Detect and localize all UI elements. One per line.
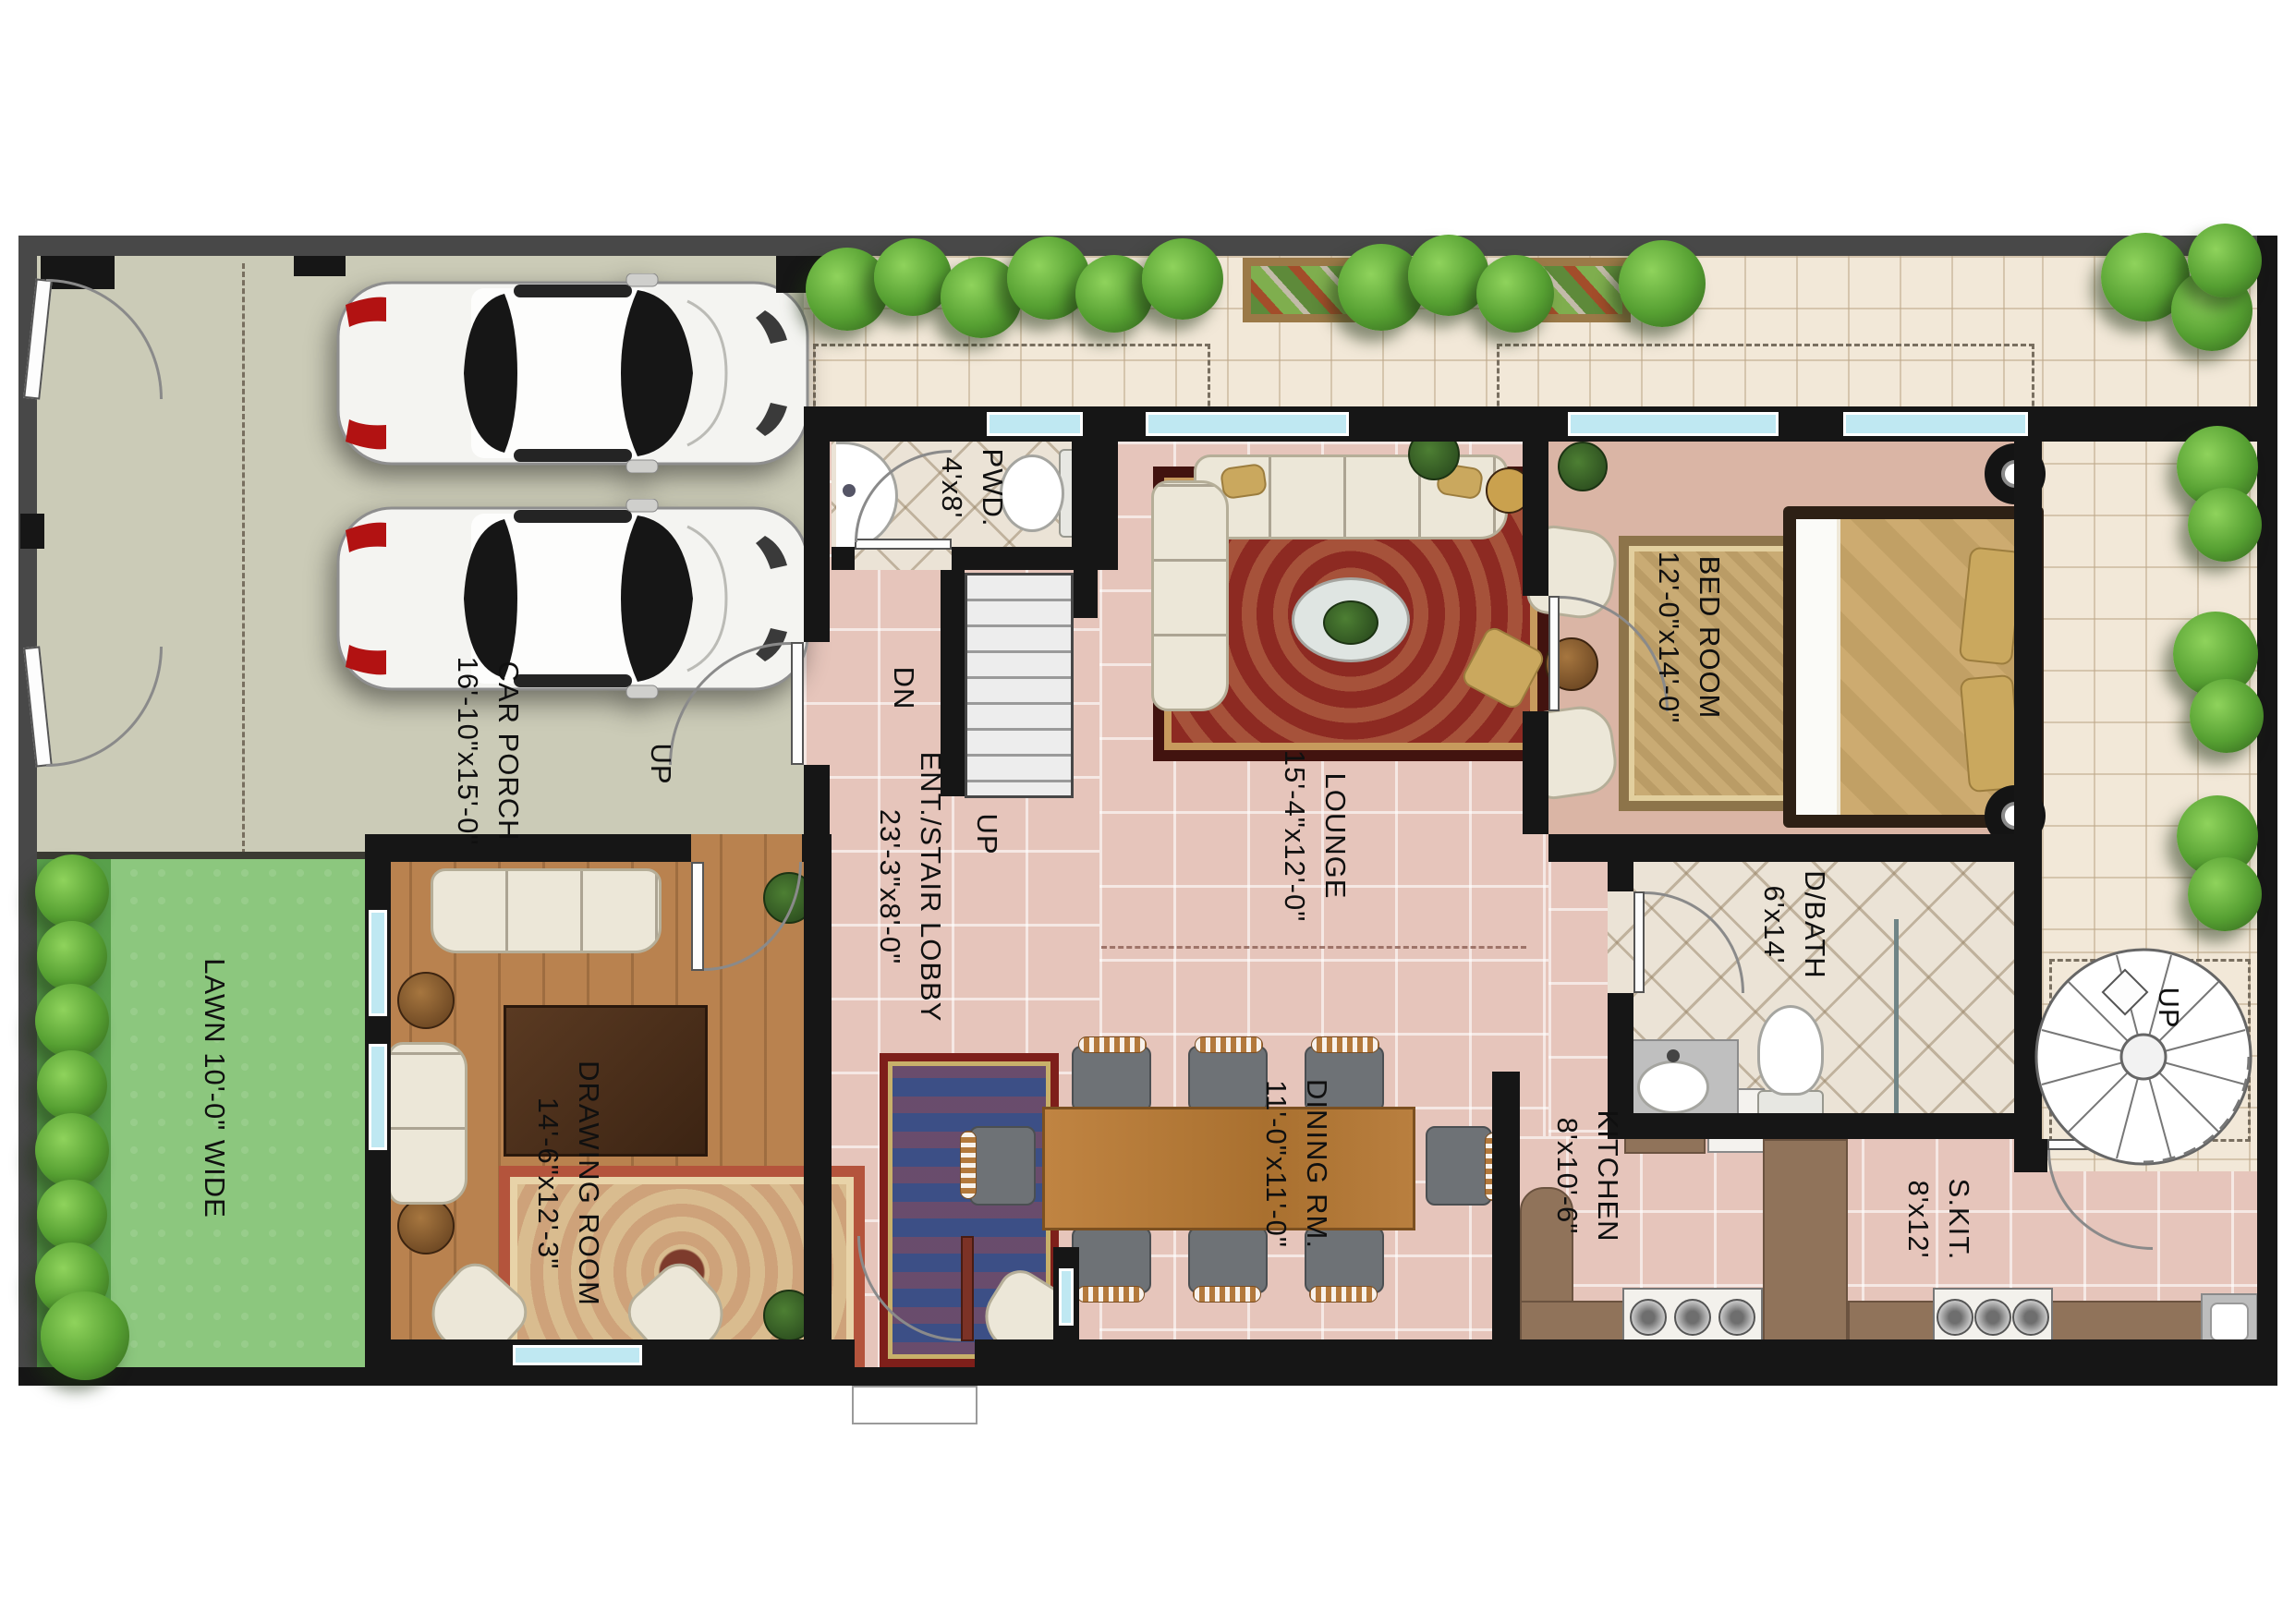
shrub xyxy=(2188,224,2262,297)
hedge-shrub xyxy=(37,921,107,991)
dining-label: DINING RM. 11'-0"x11'-0" xyxy=(1256,1079,1337,1249)
hedge-shrub xyxy=(35,984,109,1058)
spiral-up-label: UP xyxy=(2148,987,2189,1028)
pwd-label: PWD. 4'x8' xyxy=(931,449,1013,527)
skit-label: S.KIT. 8'x12' xyxy=(1898,1179,1979,1261)
shrub xyxy=(1142,238,1223,320)
kitchen-stove xyxy=(1622,1288,1763,1347)
bath-faucet xyxy=(1667,1049,1680,1062)
bath-south-wall xyxy=(1608,1113,2042,1139)
pwd-window xyxy=(987,412,1083,436)
stair-direction: UP xyxy=(2148,987,2189,1028)
lobby-stub-window xyxy=(1059,1268,1074,1326)
dining-table xyxy=(1042,1107,1415,1230)
pwd-faucet xyxy=(843,484,856,497)
porch-entry-door-leaf xyxy=(791,642,804,765)
stair-dn-label: DN xyxy=(883,667,924,710)
porch-bay-dashed-line xyxy=(242,263,245,854)
room-name: DINING RM. xyxy=(1296,1079,1337,1249)
bedroom-door-leaf xyxy=(1548,596,1560,711)
kitchen-skit-divider-counter xyxy=(1763,1139,1848,1347)
pwd-south-wall xyxy=(832,547,855,570)
drawing-room-label: DRAWING ROOM 14'-6"x12'-3" xyxy=(528,1060,609,1306)
lobby-up-label: UP xyxy=(966,813,1007,854)
lounge-bedroom-wall xyxy=(1523,711,1548,834)
boundary-wall-left xyxy=(18,236,37,1386)
room-name: DRAWING ROOM xyxy=(568,1060,609,1306)
main-door-leaf xyxy=(961,1236,974,1341)
shrub xyxy=(2188,488,2262,562)
bedroom-window xyxy=(1843,412,2028,436)
room-dims: 8'x10'-6" xyxy=(1547,1109,1587,1242)
pillar xyxy=(294,256,346,276)
shrub xyxy=(874,238,952,316)
hedge-shrub xyxy=(35,854,109,928)
boundary-wall-top xyxy=(18,236,2277,256)
hedge-shrub xyxy=(37,1180,107,1250)
skit-stove xyxy=(1933,1288,2053,1347)
burner xyxy=(1630,1299,1667,1336)
shrub xyxy=(2188,857,2262,931)
lobby-west-wall xyxy=(804,442,830,642)
room-dims: 23'-3"x8'-0" xyxy=(869,752,910,1023)
shrub xyxy=(1619,240,1706,327)
stair-direction: DN xyxy=(883,667,924,710)
drawing-side-table xyxy=(397,972,455,1029)
room-name: KITCHEN xyxy=(1587,1109,1628,1242)
room-dims: 12'-0"x14'-0" xyxy=(1648,551,1689,723)
main-staircase xyxy=(965,573,1074,798)
bath-door-leaf xyxy=(1633,891,1645,993)
bed-pillow xyxy=(1960,674,2023,794)
floor-plan: CAR PORCH 16'-10"x15'-0" UP LAWN 10'-0" … xyxy=(0,0,2295,1624)
room-dims: 14'-6"x12'-3" xyxy=(528,1060,568,1306)
stair-direction: UP xyxy=(640,743,681,784)
dining-chair xyxy=(1072,1046,1151,1112)
drawing-door-leaf xyxy=(691,862,704,971)
porch-up-label: UP xyxy=(640,743,681,784)
toilet-bowl xyxy=(1757,1005,1824,1096)
drawing-sofa xyxy=(431,868,662,953)
south-wall xyxy=(975,1339,2257,1386)
room-dims: 4'x8' xyxy=(931,449,972,527)
bath-west-wall xyxy=(1608,862,1633,891)
lounge-west-stub xyxy=(1074,570,1098,618)
lounge-window xyxy=(1146,412,1349,436)
dining-chair xyxy=(1072,1227,1151,1293)
bedroom-label: BED ROOM 12'-0"x14'-0" xyxy=(1648,551,1730,723)
room-name: LAWN 10'-0" WIDE xyxy=(194,958,235,1218)
room-name: D/BATH xyxy=(1794,870,1835,978)
burner xyxy=(1974,1299,2011,1336)
lounge-sofa-left xyxy=(1151,480,1229,711)
room-dims: 11'-0"x11'-0" xyxy=(1256,1079,1296,1249)
burner xyxy=(1674,1299,1711,1336)
gate-post xyxy=(20,514,44,549)
hedge-shrub xyxy=(37,1050,107,1121)
bath-sink xyxy=(1637,1060,1709,1114)
room-name: PWD. xyxy=(972,449,1013,527)
room-dims: 6'x14' xyxy=(1754,870,1794,978)
dining-kitchen-wall xyxy=(1492,1072,1520,1344)
drawing-loveseat xyxy=(388,1042,467,1205)
bedroom-south-wall xyxy=(1548,834,2042,862)
drawing-side-table xyxy=(397,1197,455,1254)
coffee-table-plant xyxy=(1323,600,1378,645)
stair-direction: UP xyxy=(966,813,1007,854)
lounge-bedroom-wall xyxy=(1523,442,1548,596)
burner xyxy=(1718,1299,1755,1336)
sink-basin xyxy=(2210,1303,2249,1341)
room-dims: 15'-4"x12'-0" xyxy=(1274,750,1315,922)
bedroom-plant xyxy=(1558,442,1608,491)
room-name: BED ROOM xyxy=(1689,551,1730,723)
room-name: S.KIT. xyxy=(1938,1179,1979,1261)
dining-chair xyxy=(969,1126,1036,1206)
room-dims: 16'-10"x15'-0" xyxy=(447,657,488,846)
drawing-south-window xyxy=(513,1345,642,1365)
shrub xyxy=(1476,255,1554,333)
kitchen-label: KITCHEN 8'x10'-6" xyxy=(1547,1109,1628,1242)
room-name: LOUNGE xyxy=(1315,750,1355,922)
room-dims: 8'x12' xyxy=(1898,1179,1938,1261)
drawing-window xyxy=(369,1044,387,1150)
hedge-shrub xyxy=(35,1113,109,1187)
lounge-label: LOUNGE 15'-4"x12'-0" xyxy=(1274,750,1355,922)
drawing-north-wall xyxy=(802,834,832,862)
drawing-lobby-wall xyxy=(804,859,832,1367)
room-name: CAR PORCH xyxy=(488,657,528,846)
dining-chair xyxy=(1426,1126,1492,1206)
shrub xyxy=(1075,255,1153,333)
boundary-wall-right xyxy=(2257,236,2277,1386)
shower-glass-partition xyxy=(1894,919,1899,1139)
drawing-window xyxy=(369,910,387,1016)
car xyxy=(333,273,813,473)
shrub xyxy=(2190,679,2264,753)
hedge-shrub xyxy=(41,1291,129,1380)
lobby-label: ENT./STAIR LOBBY 23'-3"x8'-0" xyxy=(869,752,951,1023)
lawn-label: LAWN 10'-0" WIDE xyxy=(194,958,235,1218)
room-name: ENT./STAIR LOBBY xyxy=(910,752,951,1023)
lounge-ceiling-dashed xyxy=(1101,946,1526,949)
passage-floor xyxy=(1548,834,1608,1139)
burner xyxy=(1937,1299,1973,1336)
bath-label: D/BATH 6'x14' xyxy=(1754,870,1835,978)
bedroom-window xyxy=(1568,412,1779,436)
burner xyxy=(2012,1299,2049,1336)
entrance-step xyxy=(852,1386,977,1424)
car-porch-label: CAR PORCH 16'-10"x15'-0" xyxy=(447,657,528,846)
spiral-staircase xyxy=(2031,944,2262,1175)
